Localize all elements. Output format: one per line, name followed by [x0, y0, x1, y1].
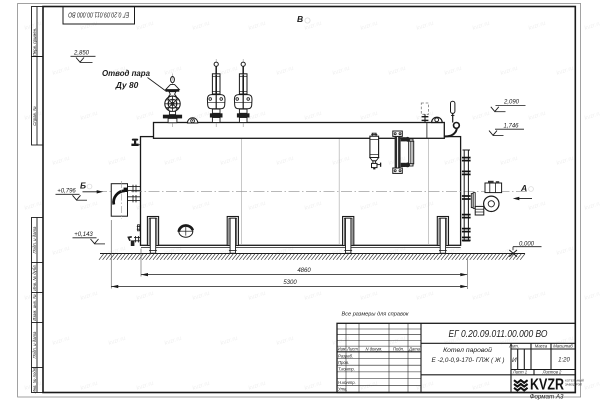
svg-text:KVZR: KVZR — [530, 377, 564, 394]
svg-text:Подп. и дата: Подп. и дата — [32, 331, 37, 359]
svg-text:Перв. примен.: Перв. примен. — [32, 28, 37, 57]
svg-text:Инв. № подл.: Инв. № подл. — [32, 367, 37, 394]
svg-text:Дата: Дата — [408, 346, 421, 351]
svg-text:ЗАВОД РЭП: ЗАВОД РЭП — [565, 383, 582, 387]
svg-text:4860: 4860 — [297, 268, 311, 274]
svg-text:N докум.: N докум. — [366, 346, 383, 351]
svg-text:2,090: 2,090 — [503, 99, 520, 105]
svg-text:Утв.: Утв. — [338, 387, 348, 392]
svg-text:Лист 1: Лист 1 — [512, 370, 527, 375]
svg-text:1,746: 1,746 — [503, 123, 519, 129]
svg-text:Инв. № дубл.: Инв. № дубл. — [32, 264, 37, 290]
svg-text:Б: Б — [80, 181, 86, 191]
svg-text:2,850: 2,850 — [73, 51, 90, 57]
svg-text:Масса: Масса — [535, 344, 548, 349]
svg-text:Котел паровой: Котел паровой — [443, 346, 492, 354]
svg-text:+0,796: +0,796 — [57, 189, 76, 195]
svg-text:Масштаб: Масштаб — [553, 344, 573, 349]
svg-text:Изм: Изм — [338, 346, 346, 351]
svg-text:Разраб.: Разраб. — [338, 353, 353, 358]
svg-text:ЕГ 0.20.09.011.00.000 ВО: ЕГ 0.20.09.011.00.000 ВО — [68, 11, 129, 20]
svg-text:Н.контр.: Н.контр. — [338, 380, 356, 385]
svg-text:Справ. №: Справ. № — [32, 106, 37, 126]
svg-text:1:20: 1:20 — [558, 357, 570, 363]
svg-text:Подп. и дата: Подп. и дата — [32, 226, 37, 254]
svg-text:Взам. инв. №: Взам. инв. № — [32, 294, 37, 321]
svg-text:А: А — [520, 183, 527, 193]
svg-text:Е -2,0-0,9-170- ГЛЖ ( Ж ): Е -2,0-0,9-170- ГЛЖ ( Ж ) — [432, 357, 505, 364]
svg-text:Отвод пара: Отвод пара — [102, 68, 150, 78]
svg-text:Ду 80: Ду 80 — [115, 80, 139, 90]
svg-text:ЕГ 0.20.09.011.00.000 ВО: ЕГ 0.20.09.011.00.000 ВО — [449, 328, 548, 340]
svg-text:Подп.: Подп. — [393, 346, 404, 351]
svg-text:Т.контр.: Т.контр. — [338, 367, 355, 372]
svg-text:В: В — [297, 14, 303, 24]
svg-text:+0,143: +0,143 — [74, 232, 93, 238]
svg-text:Пров.: Пров. — [338, 360, 349, 365]
svg-text:Все размеры для справок: Все размеры для справок — [342, 312, 409, 318]
svg-text:Лит.: Лит. — [508, 344, 519, 349]
svg-text:Листов 2: Листов 2 — [542, 370, 562, 375]
svg-text:Лист: Лист — [346, 346, 358, 351]
svg-text:И: И — [512, 357, 517, 364]
svg-text:5300: 5300 — [283, 280, 297, 286]
svg-text:Формат А3: Формат А3 — [530, 394, 564, 400]
